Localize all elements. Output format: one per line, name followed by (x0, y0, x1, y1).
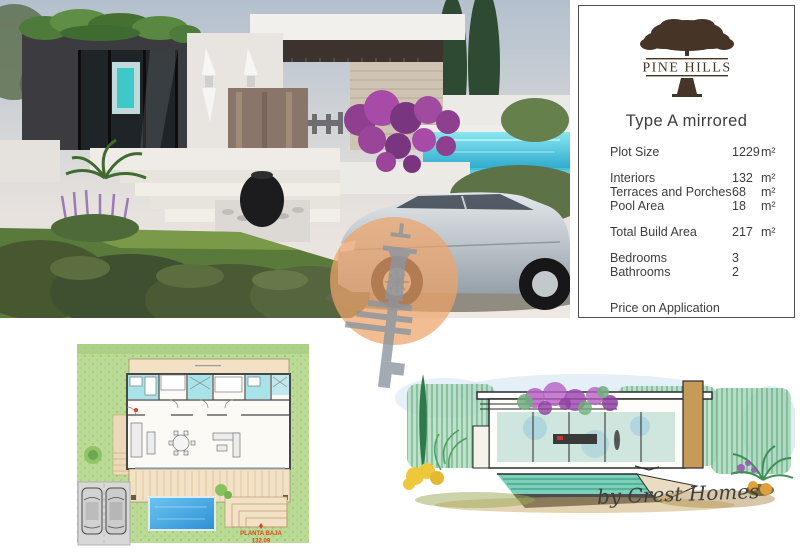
spec-row-total-build: Total Build Area 217 m² (610, 225, 794, 239)
villa-render-photo (0, 0, 570, 318)
car-topview (106, 488, 126, 534)
spec-label: Terraces and Porches (610, 185, 732, 199)
sketch-art (385, 368, 795, 533)
watercolor-sketch: by Crest Homes (385, 368, 795, 533)
spec-label: Total Build Area (610, 225, 732, 239)
unit-type-title: Type A mirrored (579, 112, 794, 131)
spec-unit (761, 265, 794, 279)
pine-hills-logo: PINE HILLS (579, 14, 794, 107)
car-topview (82, 488, 102, 534)
spec-row-bedrooms: Bedrooms 3 (610, 251, 794, 265)
spec-row-pool-area: Pool Area 18 m² (610, 199, 794, 213)
spec-value: 132 (732, 171, 761, 185)
spec-unit (761, 251, 794, 265)
spec-value: 18 (732, 199, 761, 213)
spec-row-interiors: Interiors 132 m² (610, 171, 794, 185)
spec-table: Plot Size 1229 m² Interiors 132 m² Terra… (579, 145, 794, 279)
spec-row-plot-size: Plot Size 1229 m² (610, 145, 794, 159)
villa-render-art (0, 0, 570, 318)
price-note: Price on Application (579, 301, 794, 315)
spec-value: 217 (732, 225, 761, 239)
spec-value: 1229 (732, 145, 761, 159)
pool-hedge (501, 98, 569, 142)
spec-row-bathrooms: Bathrooms 2 (610, 265, 794, 279)
spec-label: Plot Size (610, 145, 732, 159)
spec-value: 2 (732, 265, 761, 279)
floor-plan: PLANTA BAJA 132.09 (75, 337, 311, 549)
pergola (283, 40, 443, 62)
logo-text: PINE HILLS (642, 61, 731, 76)
spec-label: Interiors (610, 171, 732, 185)
floor-plan-art: PLANTA BAJA 132.09 (75, 337, 311, 549)
spec-value: 3 (732, 251, 761, 265)
brochure-page: PINE HILLS Type A mirrored Plot Size 122… (0, 0, 800, 555)
plan-area: 132.09 (252, 539, 271, 545)
spec-label: Pool Area (610, 199, 732, 213)
spec-panel: PINE HILLS Type A mirrored Plot Size 122… (578, 5, 795, 318)
spec-label: Bedrooms (610, 251, 732, 265)
entry-cube (22, 25, 187, 150)
spec-unit: m² (761, 145, 794, 159)
spec-row-terraces: Terraces and Porches 68 m² (610, 185, 794, 199)
spec-value: 68 (732, 185, 761, 199)
spec-unit: m² (761, 199, 794, 213)
pine-tree-icon: PINE HILLS (622, 14, 752, 102)
spec-unit: m² (761, 171, 794, 185)
plan-label: PLANTA BAJA (240, 531, 282, 537)
spec-unit: m² (761, 185, 794, 199)
spec-unit: m² (761, 225, 794, 239)
spec-label: Bathrooms (610, 265, 732, 279)
